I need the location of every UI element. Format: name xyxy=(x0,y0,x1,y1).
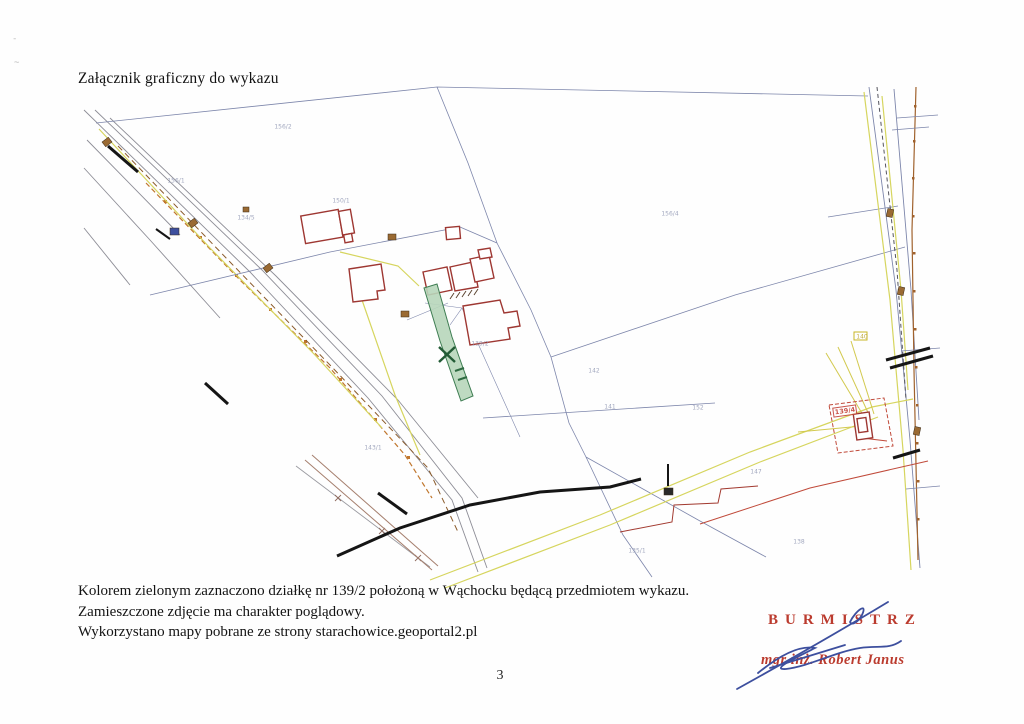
parcel-label: 152 xyxy=(692,405,703,412)
parcel-label: 147 xyxy=(750,469,761,476)
parcel-label: 135/1 xyxy=(628,548,645,555)
building xyxy=(446,226,461,239)
parcel-label: 150/1 xyxy=(332,198,349,205)
parcel-label: 156/4 xyxy=(661,211,678,218)
mayor-stamp: BURMISTRZ mgr inż. Robert Janus xyxy=(735,595,985,700)
building xyxy=(478,248,492,259)
caption-block: Kolorem zielonym zaznaczono działkę nr 1… xyxy=(78,581,738,643)
road-edge-brown xyxy=(305,455,438,570)
building xyxy=(301,207,356,249)
road-yellow-bottom xyxy=(340,252,913,588)
parcel-label: 156/2 xyxy=(274,124,291,131)
highlight-parcel-139-2 xyxy=(424,284,473,401)
building xyxy=(349,264,385,302)
road-bundle-left xyxy=(84,110,487,572)
parcel-label: 156/1 xyxy=(167,178,184,185)
red-boundary-lines xyxy=(620,398,928,532)
signature-strokes xyxy=(735,595,985,700)
parcel-label: 142 xyxy=(588,368,599,375)
parcel-label: 139/2 xyxy=(471,341,488,348)
utility-line-orange xyxy=(146,183,432,498)
buildings xyxy=(301,207,873,440)
utility-symbol-blue xyxy=(170,228,179,235)
parcel-label: 141 xyxy=(604,404,615,411)
parcel-label: 134/5 xyxy=(237,215,254,222)
caption-line-2: Zamieszczone zdjęcie ma charakter pogląd… xyxy=(78,602,738,623)
black-structures xyxy=(108,146,933,556)
page-number: 3 xyxy=(490,668,510,684)
parcel-label: 143/1 xyxy=(364,445,381,452)
road-yellow-left xyxy=(99,129,382,428)
caption-line-3: Wykorzystano mapy pobrane ze strony star… xyxy=(78,622,738,643)
scanned-page: - ~ Załącznik graficzny do wykazu xyxy=(0,0,1024,724)
parcel-label: 138 xyxy=(793,539,804,546)
caption-line-1: Kolorem zielonym zaznaczono działkę nr 1… xyxy=(78,581,738,602)
parcel-label: 140 xyxy=(856,334,867,341)
building xyxy=(853,412,872,440)
building xyxy=(463,300,520,345)
road-bundle-right xyxy=(864,87,940,570)
